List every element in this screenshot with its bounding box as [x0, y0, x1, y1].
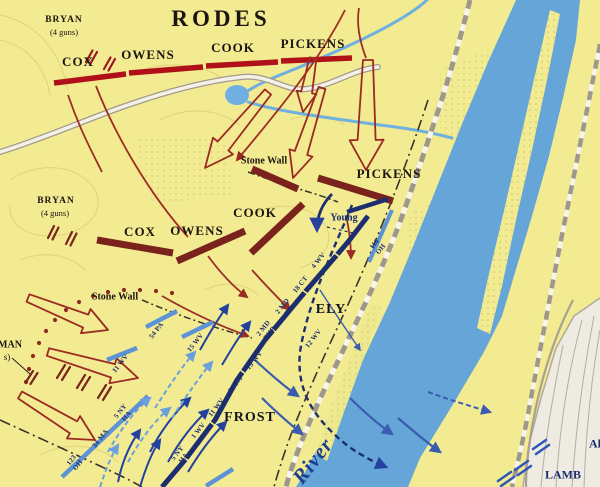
streams — [246, 0, 452, 138]
bryan-top-label: BRYAN — [45, 15, 83, 25]
bryan-top-guns-label: (4 guns) — [50, 27, 78, 37]
union-young-bar — [347, 199, 388, 212]
cook-first-label: COOK — [211, 40, 255, 56]
cox-first-label: COX — [62, 54, 94, 70]
map-graphics — [0, 0, 600, 487]
edge-fragment-man2: s) — [4, 352, 11, 362]
stone-wall-upper-label: Stone Wall — [241, 156, 287, 167]
edge-fragment-al: Al — [589, 437, 600, 452]
ely-brigade-label: ELY — [316, 302, 347, 318]
edge-fragment-man: MAN — [0, 340, 22, 351]
lamb-label: LAMB — [545, 468, 581, 483]
pond — [225, 85, 249, 105]
owens-second-label: OWENS — [170, 223, 223, 239]
cook-second-label: COOK — [233, 205, 277, 221]
artillery-icon-left-cluster — [26, 365, 111, 400]
division-title-rodes: RODES — [171, 6, 270, 32]
owens-first-label: OWENS — [121, 47, 174, 63]
frost-brigade-label: FROST — [224, 410, 276, 426]
pickens-first-label: PICKENS — [281, 36, 346, 52]
young-label: Young — [330, 213, 357, 224]
upland-terrain — [523, 298, 600, 487]
cox-second-label: COX — [124, 224, 156, 240]
bryan-mid-label: BRYAN — [37, 196, 75, 206]
battle-map: RODES BRYAN (4 guns) COX OWENS COOK PICK… — [0, 0, 600, 487]
label-leader-line — [12, 358, 30, 374]
bryan-mid-guns-label: (4 guns) — [41, 208, 69, 218]
stone-wall-lower-label: Stone Wall — [92, 292, 138, 303]
pickens-second-label: PICKENS — [357, 166, 422, 182]
